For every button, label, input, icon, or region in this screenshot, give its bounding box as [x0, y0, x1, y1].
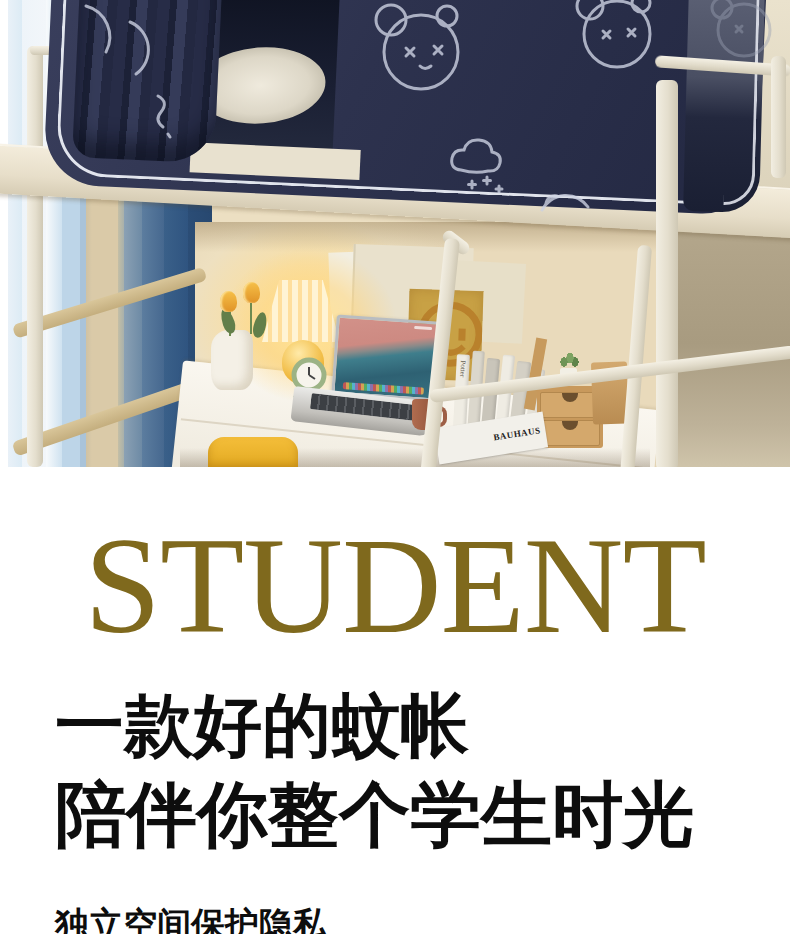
drawer-notch — [562, 421, 578, 430]
magazine-title: BAUHAUS — [493, 425, 541, 442]
organizer-drawer — [540, 392, 600, 418]
tulip-flower — [220, 291, 237, 312]
drawer-notch — [562, 393, 578, 402]
organizer-drawer — [540, 420, 600, 446]
book-spine-title: Potter — [458, 360, 467, 377]
tulip-flower — [243, 282, 260, 303]
bear-face-icon — [577, 0, 650, 67]
laptop-screen — [331, 315, 439, 401]
bear-face-icon — [376, 5, 458, 89]
menubar — [414, 326, 432, 330]
bed-frame-right-leg — [656, 80, 678, 467]
tulip-stem — [250, 302, 252, 334]
white-vase — [211, 330, 253, 390]
headboard-rail-post — [771, 56, 786, 178]
side-bear-icon — [712, 0, 770, 56]
product-detail-page: Potter BAUHAUS — [0, 0, 790, 934]
next-section-title-partial: 独立空间保护隐私 — [55, 907, 790, 934]
tagline-line1: 一款好的蚊帐 — [55, 689, 790, 764]
yellow-chair — [208, 437, 298, 467]
keyboard — [310, 393, 415, 421]
curtain-pattern-icon — [86, 6, 170, 137]
cloud-icon — [452, 140, 502, 192]
magazine-cover-photo — [441, 425, 502, 458]
headline-student: STUDENT — [0, 517, 790, 655]
hero-product-photo: Potter BAUHAUS — [0, 0, 790, 467]
tagline-line2: 陪伴你整个学生时光 — [55, 777, 790, 854]
bear-ear-peek-icon — [542, 196, 588, 210]
